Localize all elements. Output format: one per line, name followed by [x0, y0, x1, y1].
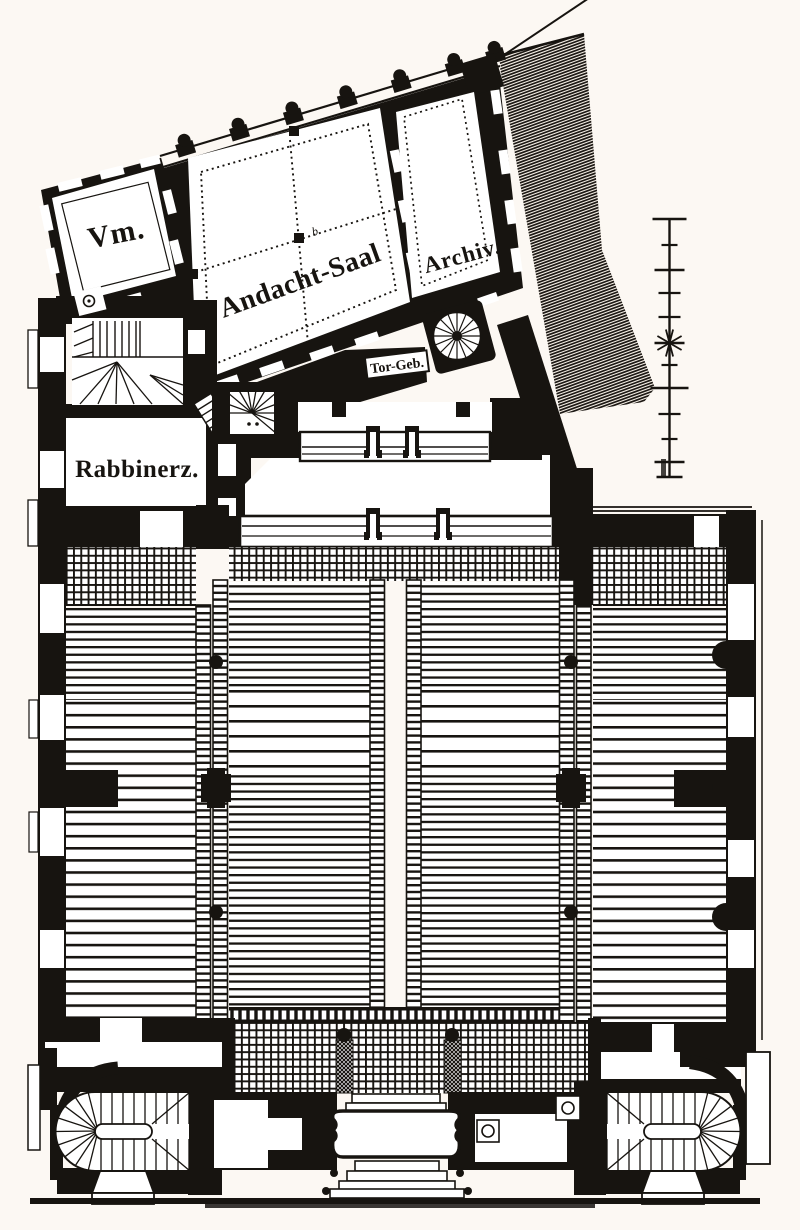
svg-text:Rabbinerz.: Rabbinerz. [75, 456, 199, 483]
